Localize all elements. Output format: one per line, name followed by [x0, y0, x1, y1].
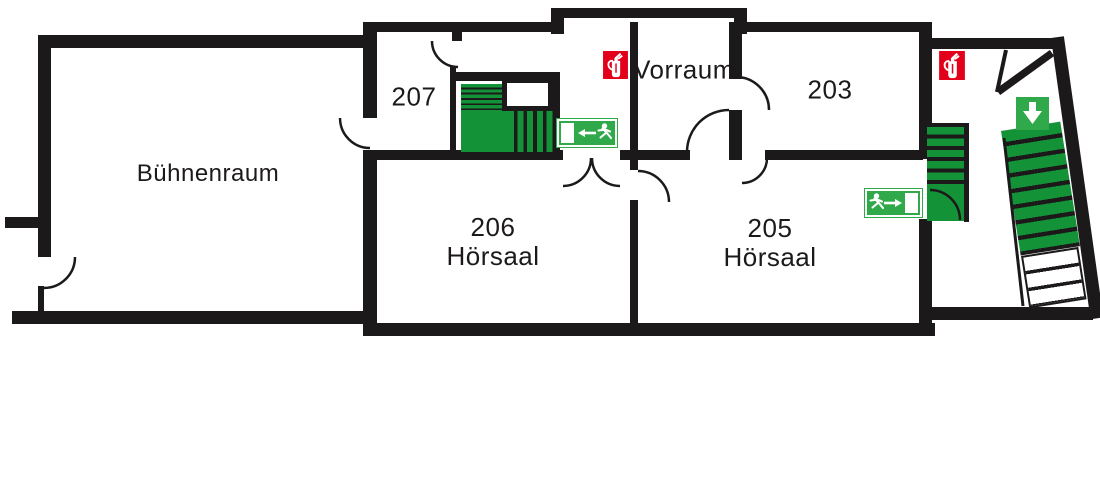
wall [630, 200, 638, 324]
wall [925, 307, 1093, 320]
fire-extinguisher-icon [603, 51, 628, 79]
fire-extinguisher-icon [939, 51, 965, 80]
wall [452, 32, 462, 41]
wall [630, 22, 638, 170]
small-stairs-flight [927, 127, 965, 184]
wall [729, 110, 742, 160]
wall [38, 35, 377, 48]
central-stairs-void [502, 78, 553, 111]
room-205-label: 205 Hörsaal [723, 214, 816, 272]
direction-down-arrow-sign [1016, 97, 1049, 130]
break-mark-line [997, 50, 1006, 92]
break-mark-line [998, 53, 1052, 92]
door-arc [687, 110, 729, 152]
central-stairs-lower-flight [508, 110, 556, 152]
room-206-type: Hörsaal [446, 242, 539, 271]
wall [926, 38, 1057, 49]
room-206-number: 206 [446, 213, 539, 242]
room-buehnenraum-label: Bühnenraum [137, 160, 279, 188]
wall [12, 311, 377, 324]
emergency-exit-left-sign [556, 118, 618, 148]
room-205-type: Hörsaal [723, 243, 816, 272]
wall [363, 22, 557, 32]
door-arc [340, 118, 370, 148]
wall [38, 35, 51, 257]
floor-plan: Bühnenraum 207 Vorraum 203 206 Hörsaal 2… [0, 0, 1100, 500]
door-arc [742, 158, 767, 183]
wall [551, 8, 747, 18]
central-stairs-landing [461, 110, 508, 152]
wall [363, 150, 377, 324]
wall [765, 150, 923, 160]
wall [363, 22, 377, 118]
wall [734, 22, 932, 32]
small-stairs-landing [927, 184, 965, 221]
wall [363, 323, 935, 336]
door-arc [736, 77, 769, 110]
room-207-label: 207 [392, 82, 437, 113]
wall [38, 286, 44, 313]
room-203-label: 203 [808, 75, 853, 106]
door-arc [592, 158, 620, 186]
door-arc [563, 158, 591, 186]
door-arc [638, 171, 669, 202]
room-205-number: 205 [723, 214, 816, 243]
room-vorraum-label: Vorraum [633, 55, 735, 86]
wall [5, 217, 38, 228]
emergency-exit-right-sign [864, 188, 923, 218]
wall [964, 123, 969, 222]
main-stairs-lower-flight [1021, 247, 1087, 308]
wall [551, 8, 564, 34]
central-stairs-upper-flight [461, 84, 502, 110]
door-arc [44, 257, 75, 288]
room-206-label: 206 Hörsaal [446, 213, 539, 271]
door-arc [432, 41, 458, 67]
